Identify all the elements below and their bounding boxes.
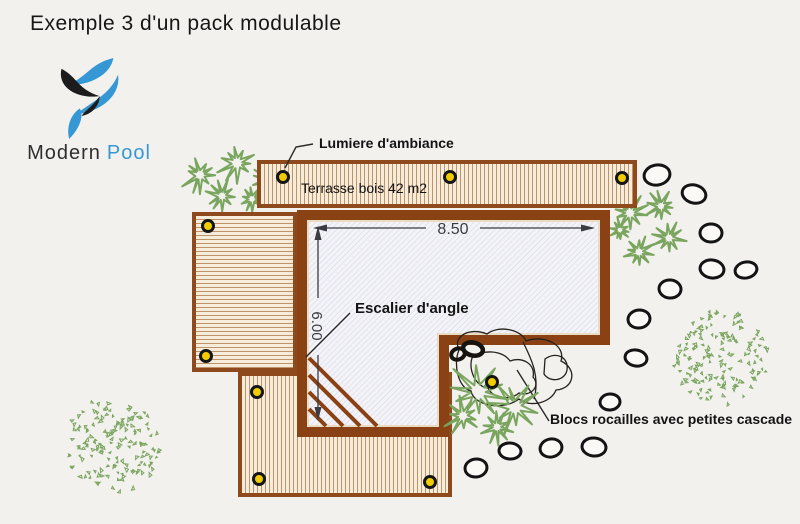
annotation-layer: 8.50 6.00 (0, 0, 800, 524)
rock-icon (699, 258, 725, 279)
arrow-right-icon (581, 225, 595, 232)
arrow-down-icon (315, 407, 322, 421)
arrow-left-icon (313, 225, 327, 232)
rock-icon (658, 279, 681, 299)
label-wood-deck: Terrasse bois 42 m2 (301, 180, 427, 196)
plant-icon (481, 411, 513, 445)
leader-line-ambient-light (285, 144, 313, 168)
dim-width-value: 8.50 (437, 221, 468, 238)
rock-icon (627, 309, 651, 330)
cascade-block-icon (462, 341, 484, 358)
rock-icon (700, 224, 722, 242)
rock-icon (624, 348, 648, 368)
dim-height-value: 6.00 (308, 311, 325, 340)
label-corner-stairs: Escalier d'angle (355, 300, 469, 317)
rock-icon (538, 437, 563, 459)
rock-icon (642, 163, 671, 187)
label-ambient-light: Lumiere d'ambiance (319, 135, 454, 151)
rock-icon (734, 260, 759, 280)
plant-icon (445, 396, 477, 434)
label-rock-cascade: Blocs rocailles avec petites cascade (550, 411, 792, 427)
rock-icon (680, 182, 708, 206)
rock-icon (498, 442, 521, 459)
rock-icon (599, 393, 620, 411)
rocks-and-plants (445, 163, 759, 479)
rock-icon (581, 437, 607, 457)
rock-icon (464, 458, 488, 479)
